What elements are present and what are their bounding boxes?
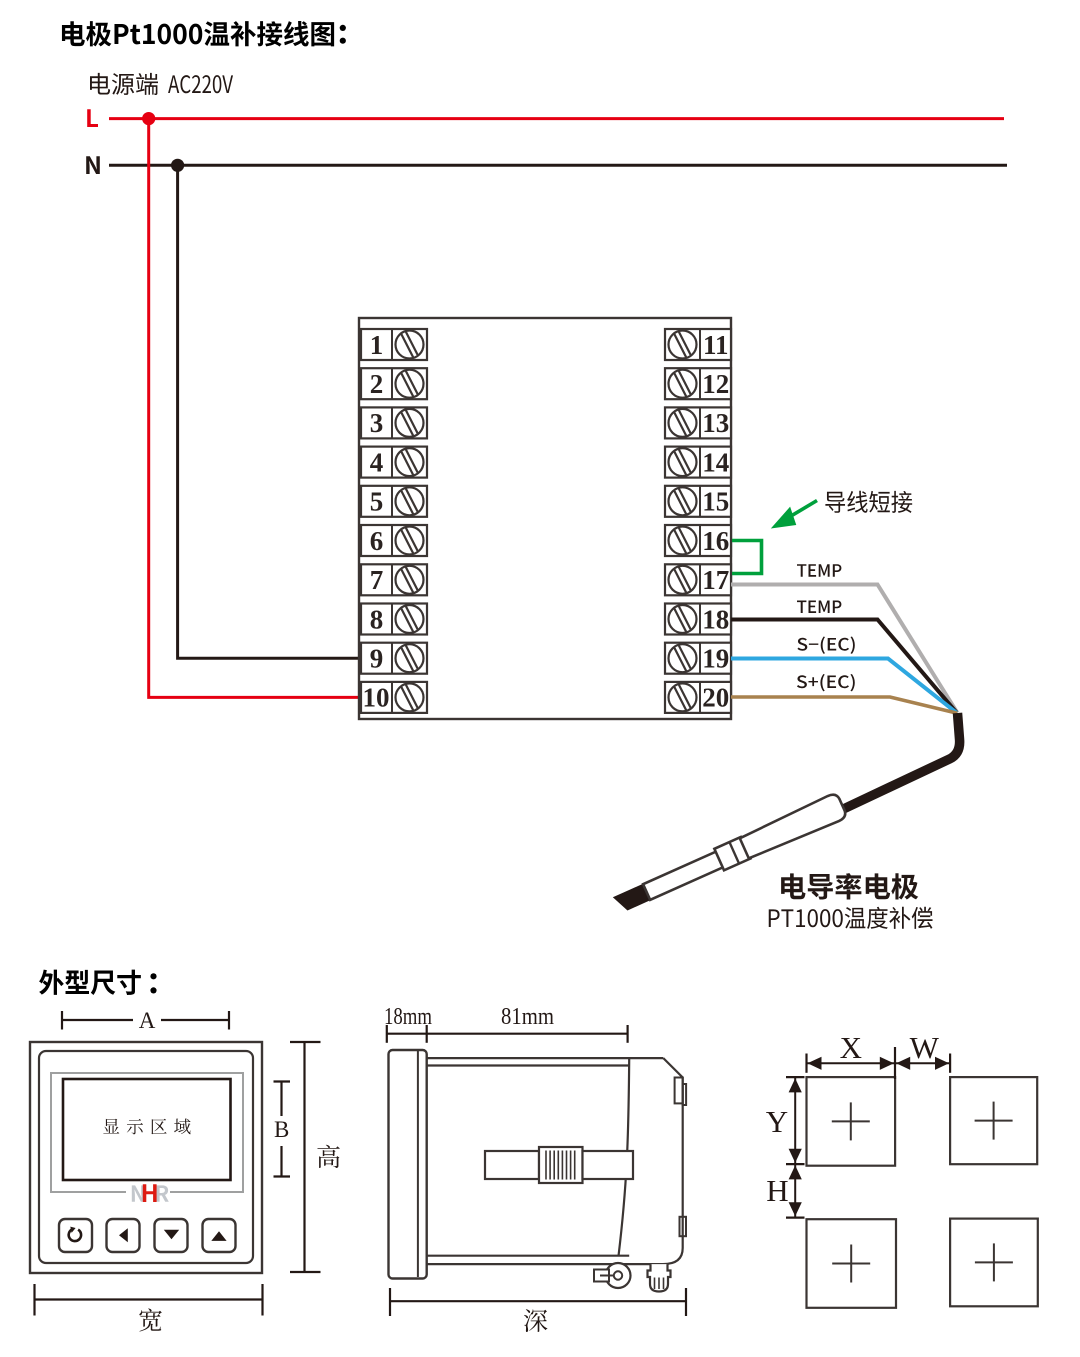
svg-text:11: 11 [703, 330, 729, 360]
svg-text:5: 5 [370, 487, 384, 517]
svg-text:13: 13 [702, 408, 729, 438]
svg-text:19: 19 [702, 644, 729, 674]
svg-text:17: 17 [702, 565, 729, 595]
svg-text:20: 20 [702, 683, 729, 713]
svg-text:2: 2 [370, 369, 384, 399]
svg-text:12: 12 [702, 369, 729, 399]
svg-text:81mm: 81mm [501, 1004, 554, 1030]
svg-text:W: W [910, 1030, 940, 1065]
svg-text:H: H [766, 1173, 788, 1208]
svg-text:4: 4 [370, 447, 384, 477]
svg-text:14: 14 [702, 447, 729, 477]
svg-text:7: 7 [370, 565, 384, 595]
svg-text:1: 1 [370, 330, 384, 360]
svg-text:18mm: 18mm [384, 1004, 432, 1030]
svg-text:16: 16 [702, 526, 729, 556]
svg-text:18: 18 [702, 604, 729, 634]
svg-text:3: 3 [370, 408, 384, 438]
svg-text:A: A [139, 1008, 156, 1033]
svg-text:X: X [840, 1030, 862, 1065]
svg-text:10: 10 [363, 683, 390, 713]
svg-text:15: 15 [702, 487, 729, 517]
svg-text:Y: Y [766, 1104, 788, 1139]
svg-text:B: B [274, 1117, 289, 1142]
svg-text:8: 8 [370, 604, 384, 634]
svg-text:9: 9 [370, 644, 384, 674]
svg-text:6: 6 [370, 526, 384, 556]
